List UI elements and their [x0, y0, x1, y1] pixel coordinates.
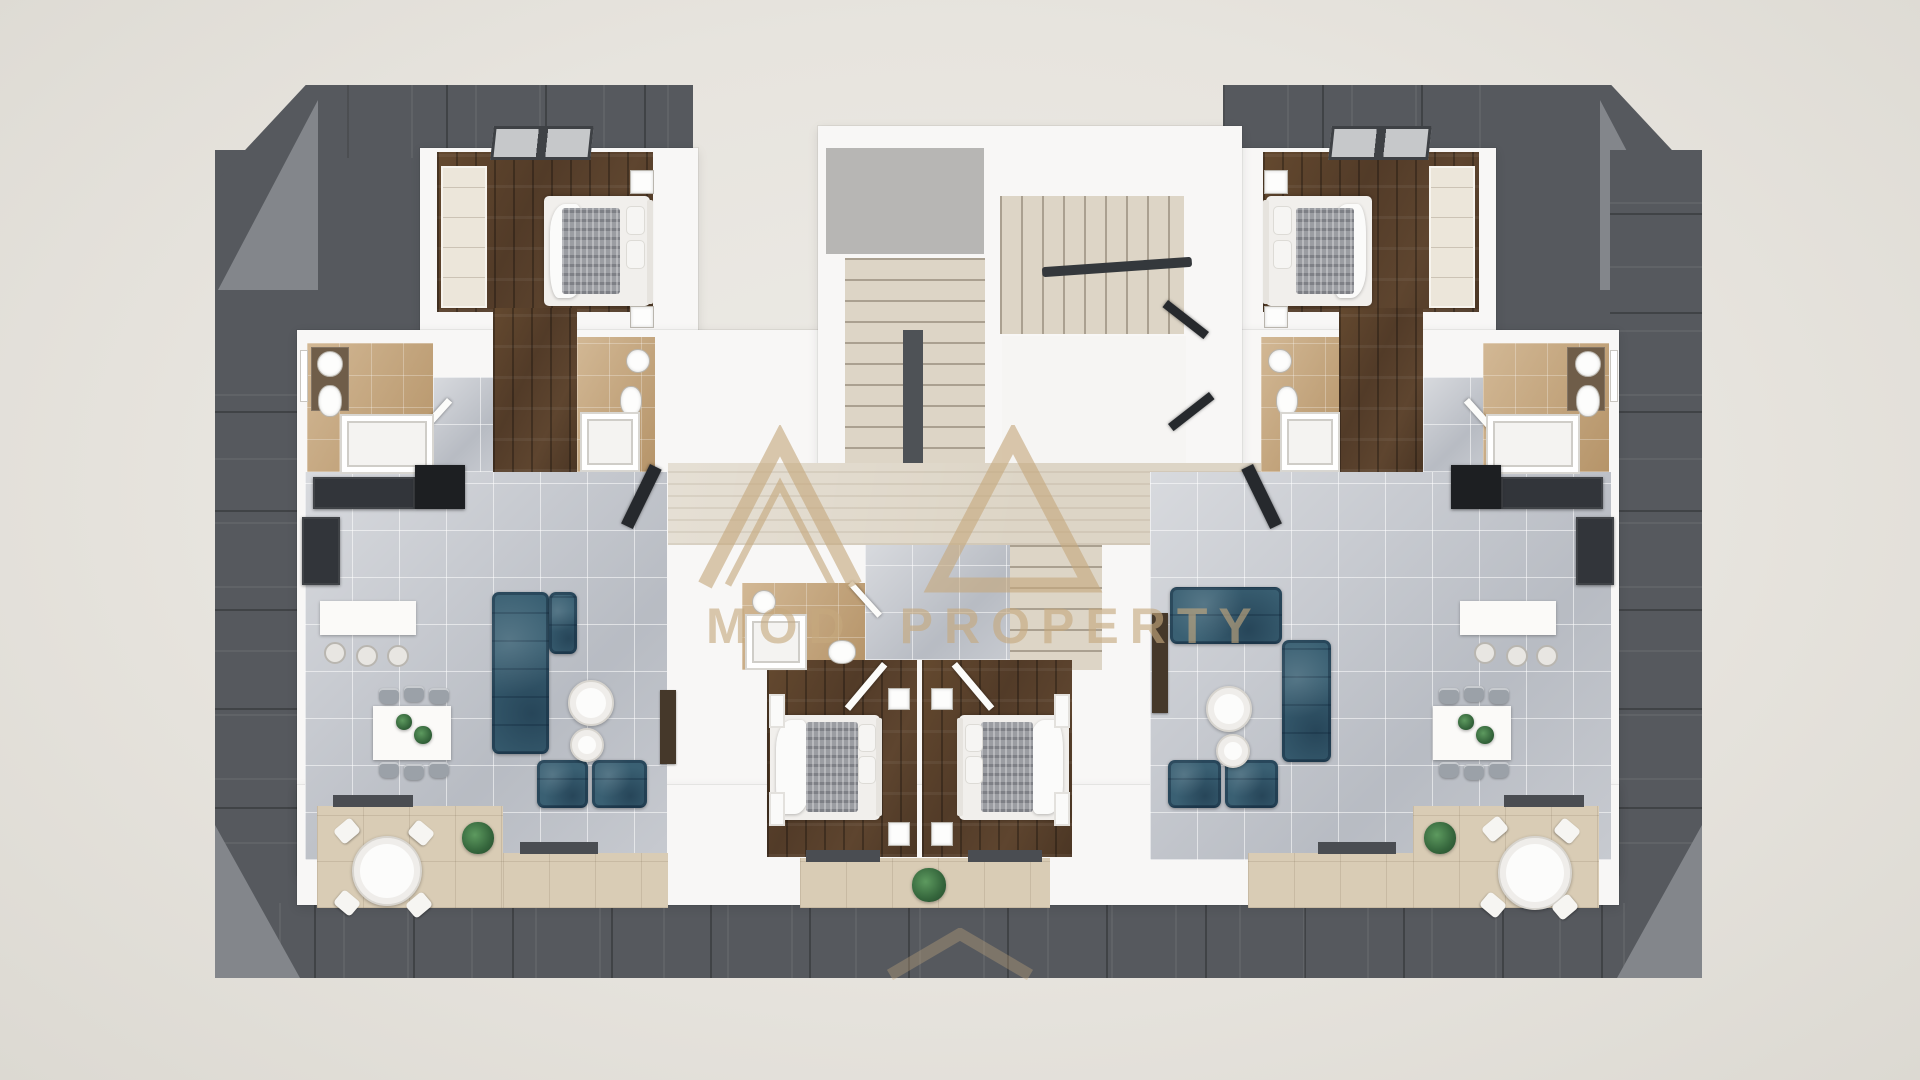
coffee-table-left-1: [568, 680, 614, 726]
kitchen-right-counter: [1501, 477, 1603, 509]
bedroom-center-left-niche-1: [769, 694, 785, 728]
nightstand-left-2: [630, 306, 654, 328]
bathroom-left-sink: [317, 351, 343, 377]
skylight-left: [490, 126, 594, 160]
nightstand-center-right-2: [931, 822, 953, 846]
bedroom-center-right-niche-1: [1054, 694, 1070, 728]
tv-bench-left: [660, 690, 676, 764]
nightstand-center-left-1: [888, 688, 910, 710]
roof-band-right: [1610, 150, 1702, 908]
bed-left-blanket: [562, 208, 620, 294]
bathroom-right-sink: [1575, 351, 1601, 377]
stair-divider-wall: [903, 330, 923, 470]
center-bath-toilet: [828, 640, 856, 664]
terrace-right-shrub: [1424, 822, 1456, 854]
bed-right-pillow-2: [1273, 240, 1292, 269]
dining-left-chair-4: [379, 762, 399, 778]
bedroom-center-left-niche-2: [769, 792, 785, 826]
wardrobe-right: [1429, 166, 1475, 308]
kitchen-left-stool-1: [324, 642, 346, 664]
nightstand-center-left-2: [888, 822, 910, 846]
bed-left-pillow-1: [626, 206, 645, 235]
dining-right-chair-1: [1439, 688, 1459, 704]
floor-plan-render: MOD PROPERTY: [0, 0, 1920, 1080]
ensuite-left-sink: [626, 349, 650, 373]
vestibule-floor: [865, 545, 1010, 660]
bed-center-left-pillow-1: [858, 724, 876, 752]
nightstand-left-1: [630, 170, 654, 194]
tv-bench-right: [1152, 613, 1168, 713]
coffee-table-left-2: [570, 728, 604, 762]
kitchen-left-fridge: [415, 465, 465, 509]
stair-landing: [1002, 336, 1186, 470]
stair-ceiling-void: [826, 148, 984, 254]
dining-right-plant-1: [1458, 714, 1474, 730]
terrace-left-threshold-2: [520, 842, 598, 854]
bed-left-headboard: [647, 200, 653, 304]
center-balcony-threshold-1: [806, 850, 880, 862]
kitchen-left-counter: [313, 477, 415, 509]
kitchen-right-stool-1: [1474, 642, 1496, 664]
kitchen-right-island: [1460, 601, 1556, 635]
sofa-left-corner: [549, 592, 577, 654]
armchair-left-1: [537, 760, 588, 808]
dining-left-plant-1: [396, 714, 412, 730]
dining-left-chair-5: [404, 764, 424, 780]
kitchen-left-stool-3: [387, 645, 409, 667]
kitchen-left-stool-2: [356, 645, 378, 667]
dining-left-chair-1: [379, 688, 399, 704]
dining-right-chair-2: [1464, 686, 1484, 702]
nightstand-right-2: [1264, 306, 1288, 328]
coffee-table-right-2: [1216, 734, 1250, 768]
nightstand-center-right-1: [931, 688, 953, 710]
entry-strip-left: [433, 377, 493, 472]
bedroom-center-right-niche-2: [1054, 792, 1070, 826]
armchair-right-1: [1168, 760, 1221, 808]
bed-center-right-pillow-2: [965, 756, 983, 784]
dining-left-chair-6: [429, 762, 449, 778]
watermark-fragment-bottom: [880, 928, 1040, 980]
wardrobe-left: [441, 166, 487, 308]
sofa-left-vertical: [492, 592, 549, 754]
dining-table-left: [373, 706, 451, 760]
entry-strip-right: [1423, 377, 1483, 472]
dining-left-chair-3: [429, 688, 449, 704]
bedroom-right-floor-extension: [1339, 308, 1423, 472]
center-bath-shower: [745, 614, 807, 670]
dining-left-chair-2: [404, 686, 424, 702]
terrace-right-threshold-2: [1318, 842, 1396, 854]
stairs-down-flight: [1010, 545, 1102, 670]
terrace-left-shrub: [462, 822, 494, 854]
bed-left-pillow-2: [626, 240, 645, 269]
dining-right-chair-6: [1489, 762, 1509, 778]
dining-right-chair-3: [1489, 688, 1509, 704]
bathroom-right-window: [1610, 350, 1618, 402]
terrace-left-lower: [503, 853, 668, 908]
dining-right-chair-4: [1439, 762, 1459, 778]
bathroom-left-toilet: [318, 385, 342, 417]
sofa-right-horizontal: [1170, 587, 1282, 644]
bathroom-left-window: [300, 350, 308, 402]
bathroom-right-toilet: [1576, 385, 1600, 417]
bedroom-left-floor-extension: [493, 308, 577, 472]
coffee-table-right-1: [1206, 686, 1252, 732]
bed-center-left-pillow-2: [858, 756, 876, 784]
terrace-right-threshold-1: [1504, 795, 1584, 807]
bed-right-headboard: [1263, 200, 1269, 304]
dining-right-plant-2: [1476, 726, 1494, 744]
ensuite-right-sink: [1268, 349, 1292, 373]
bed-center-right-headboard: [957, 718, 963, 816]
sofa-right-vertical: [1282, 640, 1331, 762]
armchair-left-2: [592, 760, 647, 808]
kitchen-right-stool-3: [1536, 645, 1558, 667]
center-balcony-plant: [912, 868, 946, 902]
terrace-table-left: [352, 836, 422, 906]
bed-center-left-headboard: [876, 718, 882, 816]
skylight-right: [1328, 126, 1432, 160]
terrace-left-threshold-1: [333, 795, 413, 807]
ensuite-left-shower: [580, 412, 640, 472]
terrace-right-lower: [1248, 853, 1413, 908]
kitchen-right-fridge: [1451, 465, 1501, 509]
bed-center-right-pillow-1: [965, 724, 983, 752]
kitchen-left-island: [320, 601, 416, 635]
bed-center-left-blanket: [806, 722, 858, 812]
bed-right-pillow-1: [1273, 206, 1292, 235]
dining-right-chair-5: [1464, 764, 1484, 780]
kitchen-left-wall-run: [302, 517, 340, 585]
dining-table-right: [1433, 706, 1511, 760]
bed-right-blanket: [1296, 208, 1354, 294]
nightstand-right-1: [1264, 170, 1288, 194]
kitchen-right-wall-run: [1576, 517, 1614, 585]
center-bath-sink: [752, 590, 776, 614]
ensuite-right-shower: [1280, 412, 1340, 472]
kitchen-right-stool-2: [1506, 645, 1528, 667]
center-balcony-threshold-2: [968, 850, 1042, 862]
dining-left-plant-2: [414, 726, 432, 744]
bed-center-right-blanket: [981, 722, 1033, 812]
